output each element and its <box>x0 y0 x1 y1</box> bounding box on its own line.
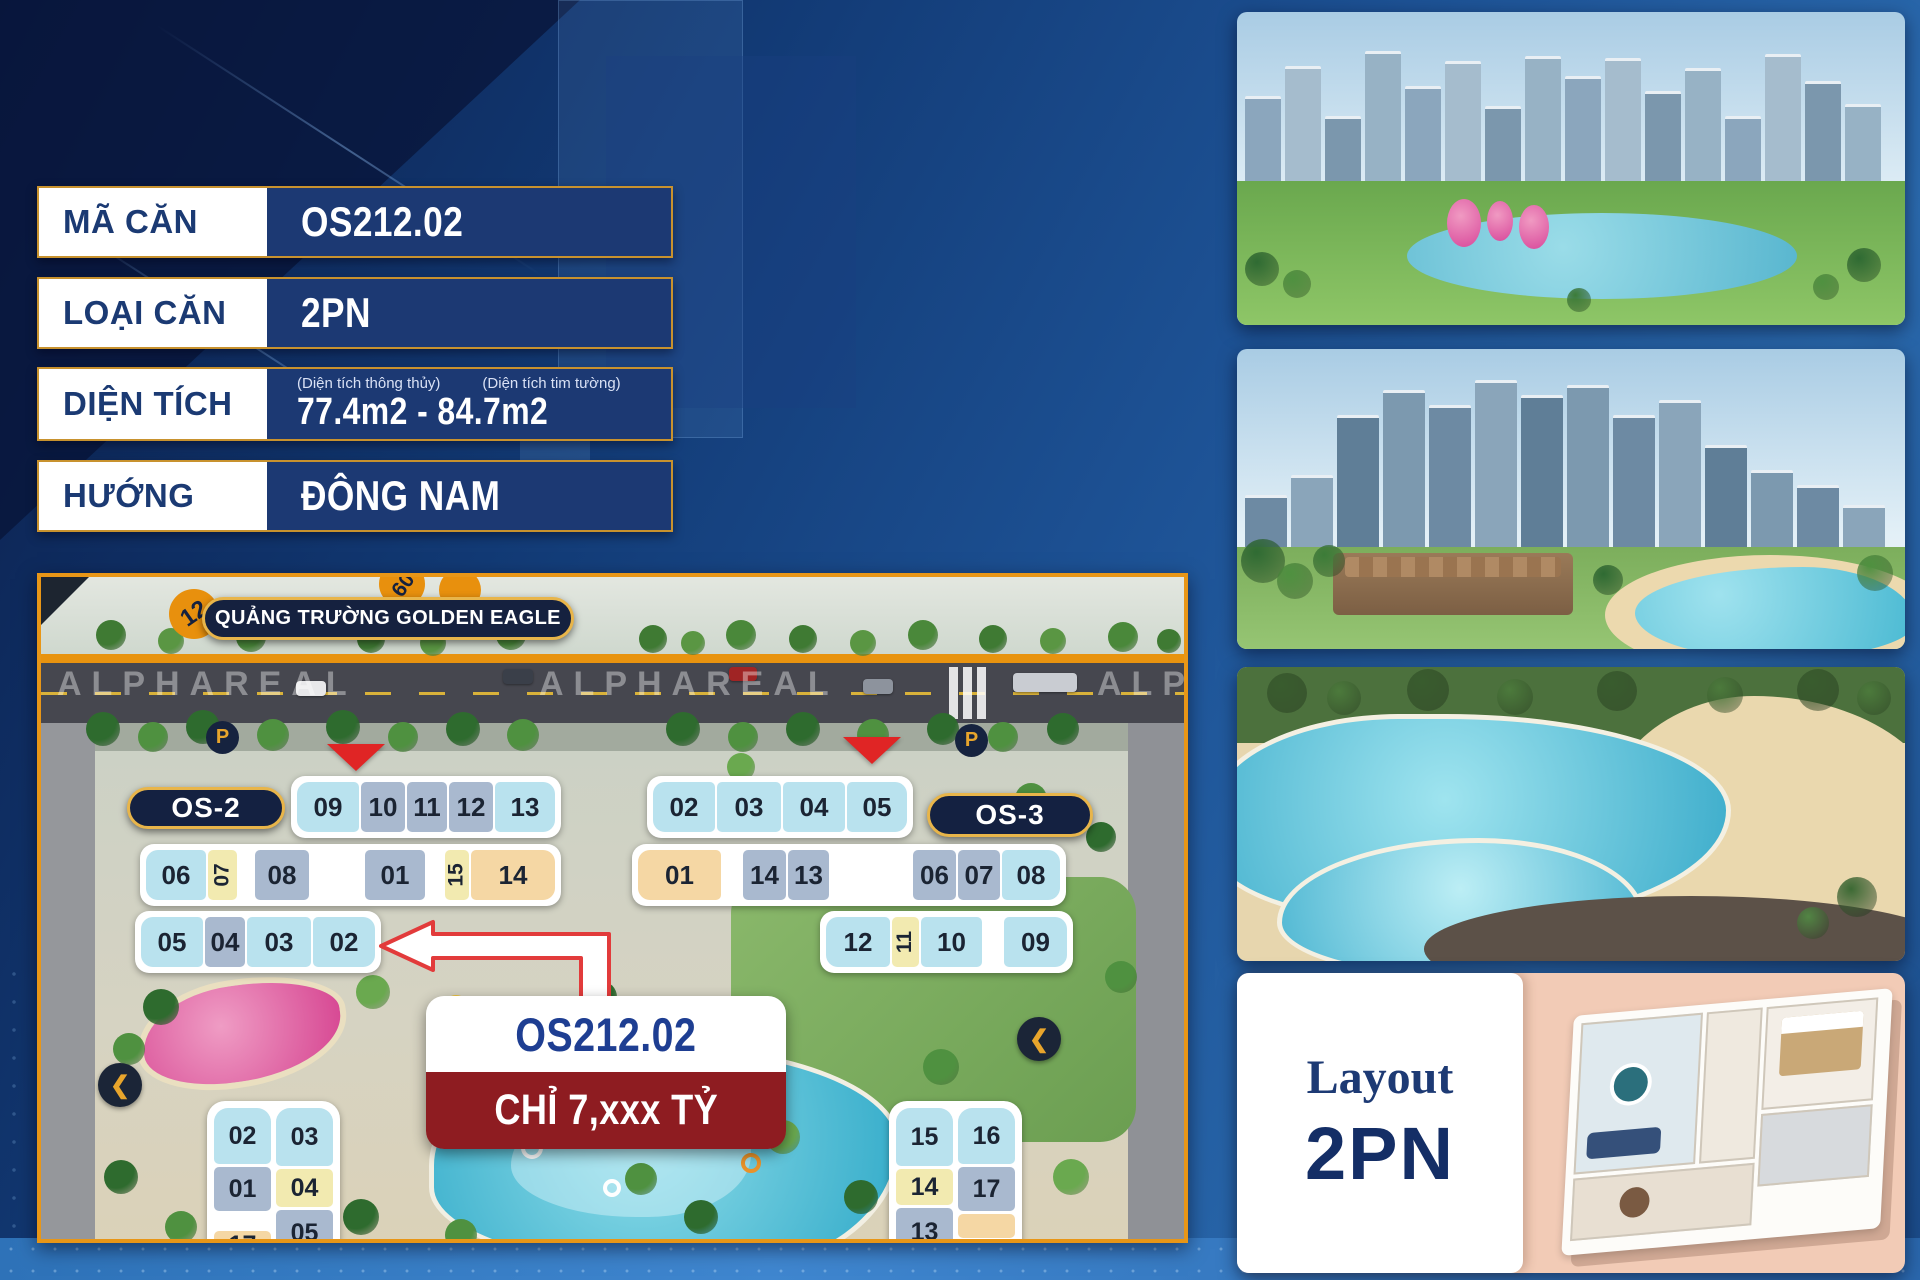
info-value: (Diện tích thông thủy) (Diện tích tim tư… <box>267 369 671 439</box>
palm-tree <box>1407 669 1449 711</box>
unit-cell-11: 11 <box>892 917 919 967</box>
info-label: MÃ CĂN <box>39 188 267 256</box>
palm-tree <box>1277 563 1313 599</box>
palm-tree <box>1847 248 1881 282</box>
flyer-root: { "info_table": { "rows": [ { "label": "… <box>0 0 1920 1280</box>
unit-cell-14: 14 <box>471 850 555 900</box>
building-label-os-3: OS-3 <box>927 793 1093 837</box>
unit-cell-03: 03 <box>247 917 311 967</box>
area-sublabel-net: (Diện tích thông thủy) <box>297 375 440 392</box>
unit-gap <box>723 850 741 900</box>
project-photo-aerial-park <box>1237 12 1905 325</box>
unit-cell-17: 17 <box>214 1231 271 1243</box>
unit-gap <box>214 1214 271 1228</box>
unit-gap <box>239 850 253 900</box>
area-sublabel-gross: (Diện tích tim tường) <box>482 375 620 392</box>
tower <box>1613 415 1655 565</box>
palm-tree <box>1245 252 1279 286</box>
unit-cell-05: 05 <box>847 782 907 832</box>
palm-tree <box>1327 681 1361 715</box>
unit-cell-17: 17 <box>958 1167 1015 1211</box>
unit-cell-04: 04 <box>205 917 245 967</box>
unit-cell-08: 08 <box>255 850 309 900</box>
unit-cell-03: 03 <box>717 782 781 832</box>
info-row-unit-code: MÃ CĂN OS212.02 <box>37 186 673 258</box>
unit-cell-10: 10 <box>361 782 405 832</box>
site-map: ALPHAREAL ALPHAREAL ALPHAREAL QUẢNG TRƯỜ… <box>37 573 1188 1243</box>
tower <box>1521 395 1563 565</box>
unit-cell-07: 07 <box>208 850 237 900</box>
unit-cell-13: 13 <box>788 850 829 900</box>
palm-tree <box>1267 673 1307 713</box>
unit-cell-15: 15 <box>445 850 469 900</box>
building-label-os-2: OS-2 <box>127 787 285 829</box>
unit-gap <box>984 917 1002 967</box>
tower <box>1659 400 1701 565</box>
unit-row: 12111009 <box>820 911 1073 973</box>
info-value: 2PN <box>267 279 671 347</box>
unit-stack: 020117030405 <box>207 1101 340 1243</box>
palm-tree <box>1813 274 1839 300</box>
layout-card-label-panel: Layout 2PN <box>1237 973 1523 1273</box>
layout-type: 2PN <box>1305 1111 1455 1196</box>
unit-cell-13: 13 <box>495 782 555 832</box>
palm-tree <box>1567 288 1591 312</box>
photo-mall-roof <box>1345 557 1561 577</box>
unit-cell-07: 07 <box>958 850 1000 900</box>
info-row-direction: HƯỚNG ĐÔNG NAM <box>37 460 673 532</box>
palm-tree <box>1597 671 1637 711</box>
palm-tree <box>1497 679 1533 715</box>
unit-row: 060708011514 <box>140 844 561 906</box>
photo-pink-sculpture <box>1447 199 1481 247</box>
layout-card: Layout 2PN <box>1237 973 1905 1273</box>
unit-cell-01: 01 <box>638 850 721 900</box>
plan-hallway <box>1699 1007 1763 1163</box>
unit-stack: 1514131617 <box>889 1101 1022 1243</box>
plan-bathroom <box>1757 1104 1872 1186</box>
project-photo-pool <box>1237 667 1905 961</box>
palm-tree <box>1797 669 1839 711</box>
tower <box>1567 385 1609 565</box>
unit-cell-09: 09 <box>1004 917 1067 967</box>
unit-cell-08: 08 <box>1002 850 1060 900</box>
palm-tree <box>1837 877 1877 917</box>
unit-row: 0910111213 <box>291 776 561 838</box>
callout-price: CHỈ 7,xxx TỶ <box>426 1072 786 1149</box>
palm-tree <box>1593 565 1623 595</box>
unit-gap <box>831 850 911 900</box>
palm-tree <box>1283 270 1311 298</box>
info-value: OS212.02 <box>267 188 671 256</box>
tower <box>1383 390 1425 565</box>
photo-pink-sculpture <box>1487 201 1513 241</box>
unit-row: 05040302 <box>135 911 381 973</box>
unit-cell-12: 12 <box>826 917 890 967</box>
plan-balcony <box>1570 1163 1755 1241</box>
floor-plan-image <box>1561 988 1892 1256</box>
unit-callout: OS212.02 CHỈ 7,xxx TỶ <box>426 996 786 1149</box>
unit-cell-02: 02 <box>653 782 715 832</box>
unit-gap <box>958 1214 1015 1238</box>
unit-cell-01: 01 <box>214 1167 271 1211</box>
palm-tree <box>1707 677 1743 713</box>
project-photo-beach-towers <box>1237 349 1905 649</box>
unit-cell-05: 05 <box>276 1210 333 1243</box>
unit-cell-11: 11 <box>407 782 447 832</box>
unit-gap <box>427 850 443 900</box>
palm-tree <box>1313 545 1345 577</box>
photo-pink-sculpture <box>1519 205 1549 249</box>
unit-cell-02: 02 <box>214 1108 271 1164</box>
unit-gap <box>311 850 363 900</box>
callout-unit-code: OS212.02 <box>426 996 786 1072</box>
unit-cell-09: 09 <box>297 782 359 832</box>
unit-cell-12: 12 <box>449 782 493 832</box>
unit-cell-01: 01 <box>365 850 425 900</box>
unit-cell-04: 04 <box>783 782 845 832</box>
tower <box>1475 380 1517 565</box>
unit-row: 02030405 <box>647 776 913 838</box>
unit-cell-06: 06 <box>913 850 956 900</box>
photo-skyline <box>1237 375 1905 565</box>
unit-cell-16: 16 <box>958 1108 1015 1164</box>
unit-cell-06: 06 <box>146 850 206 900</box>
unit-cell-10: 10 <box>921 917 982 967</box>
palm-tree <box>1857 681 1891 715</box>
unit-cell-13: 13 <box>896 1208 953 1243</box>
info-row-area: DIỆN TÍCH (Diện tích thông thủy) (Diện t… <box>37 367 673 441</box>
info-label: HƯỚNG <box>39 462 267 530</box>
unit-cell-02: 02 <box>313 917 375 967</box>
tower <box>1337 415 1379 565</box>
info-row-unit-type: LOẠI CĂN 2PN <box>37 277 673 349</box>
unit-cell-05: 05 <box>141 917 203 967</box>
unit-row: 011413060708 <box>632 844 1066 906</box>
info-label: LOẠI CĂN <box>39 279 267 347</box>
unit-cell-15: 15 <box>896 1108 953 1166</box>
info-value: ĐÔNG NAM <box>267 462 671 530</box>
bg-corner-shape <box>0 0 580 540</box>
unit-cell-14: 14 <box>896 1169 953 1205</box>
unit-cell-03: 03 <box>276 1108 333 1166</box>
unit-cell-04: 04 <box>276 1169 333 1207</box>
info-label: DIỆN TÍCH <box>39 369 267 439</box>
layout-title: Layout <box>1307 1050 1454 1105</box>
unit-cell-14: 14 <box>743 850 786 900</box>
palm-tree <box>1797 907 1829 939</box>
palm-tree <box>1857 555 1893 591</box>
tower <box>1429 405 1471 565</box>
